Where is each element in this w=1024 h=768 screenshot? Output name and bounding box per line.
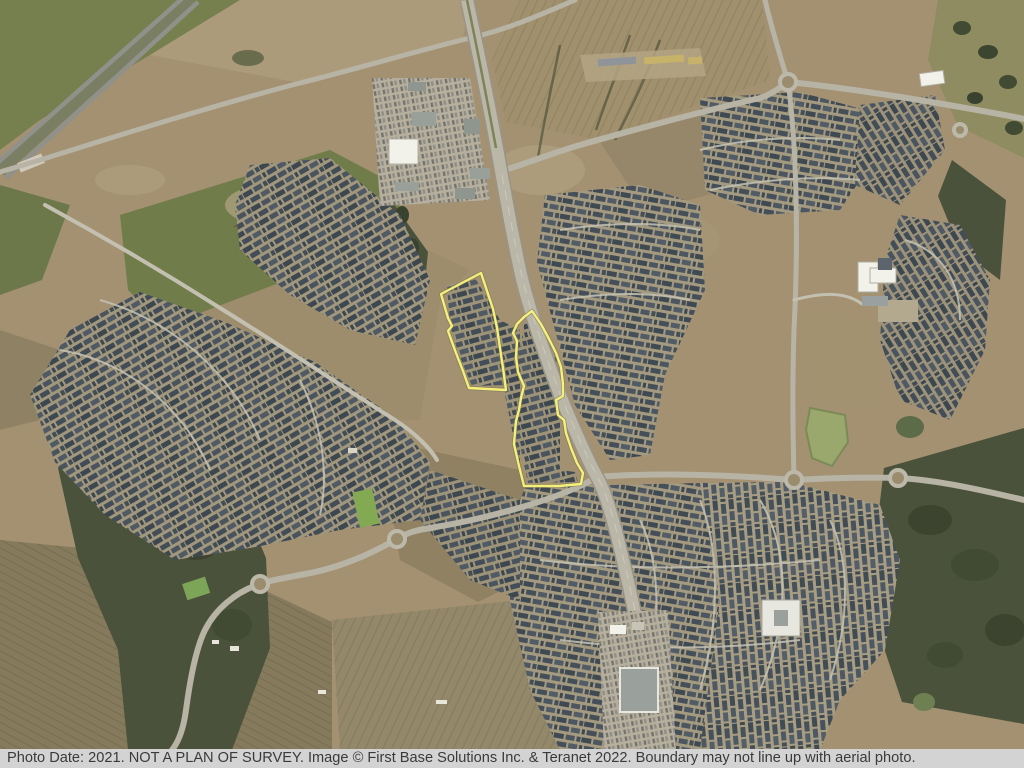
small-pond: [896, 416, 924, 438]
caption-bar: Photo Date: 2021. NOT A PLAN OF SURVEY. …: [0, 749, 1024, 768]
caption-text: Photo Date: 2021. NOT A PLAN OF SURVEY. …: [0, 749, 916, 768]
community-centre: [762, 600, 800, 636]
warehouse-building: [919, 70, 945, 86]
bottom-commercial: [598, 610, 676, 750]
aerial-map[interactable]: [0, 0, 1024, 750]
screenshot-root: Photo Date: 2021. NOT A PLAN OF SURVEY. …: [0, 0, 1024, 768]
commercial-plaza: [372, 78, 490, 206]
